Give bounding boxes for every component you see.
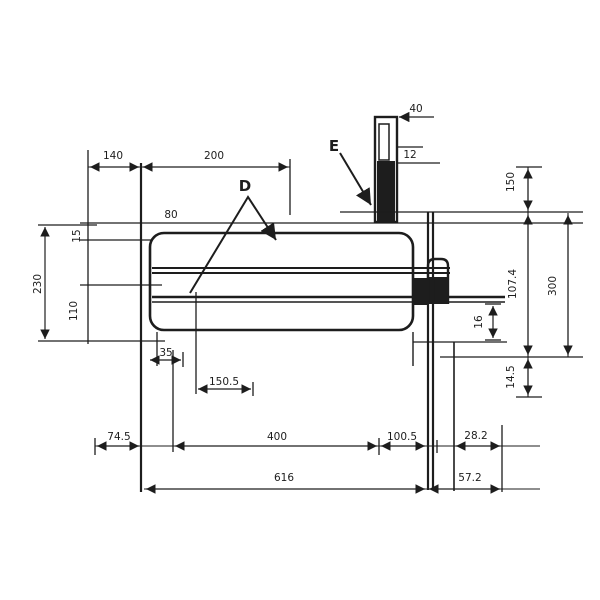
label-tab-width: 40 (409, 103, 422, 115)
label-left-lower: 110 (68, 301, 80, 321)
label-right-upper: 150 (505, 172, 517, 192)
label-top-width-right: 200 (204, 150, 224, 162)
label-bottom-right: 57.2 (458, 472, 481, 484)
label-right-mid: 107.4 (507, 269, 519, 299)
label-bottom-a: 74.5 (107, 431, 130, 443)
connector-solid-section (429, 277, 447, 304)
label-bottom-c: 100.5 (387, 431, 417, 443)
label-right-small: 16 (473, 315, 485, 329)
label-right-lower: 14.5 (505, 365, 517, 388)
label-diameter-note: 80 (164, 209, 177, 221)
label-left-total: 230 (32, 274, 44, 294)
label-left-top: 15 (71, 229, 83, 242)
label-callout-d: D (239, 177, 251, 195)
label-bottom-b: 400 (267, 431, 287, 443)
label-callout-e: E (329, 137, 339, 155)
label-notch-width: 35 (159, 347, 172, 359)
leader-d (190, 197, 276, 293)
drawing-canvas: 140 200 40 12 80 D E 230 15 110 150 107.… (0, 0, 600, 600)
label-right-outer: 300 (547, 276, 559, 296)
end-hatch-section (414, 278, 427, 305)
tab-slot-outline (379, 124, 389, 160)
label-top-width-left: 140 (103, 150, 123, 162)
leader-e (340, 153, 371, 205)
label-tab-slot: 12 (403, 149, 416, 161)
technical-drawing: 140 200 40 12 80 D E 230 15 110 150 107.… (0, 0, 600, 600)
dimension-labels: 140 200 40 12 80 D E 230 15 110 150 107.… (32, 103, 559, 484)
main-body-outline (150, 233, 413, 330)
label-bottom-total: 616 (274, 472, 294, 484)
label-offset-left: 150.5 (209, 376, 239, 388)
label-bottom-d: 28.2 (464, 430, 487, 442)
